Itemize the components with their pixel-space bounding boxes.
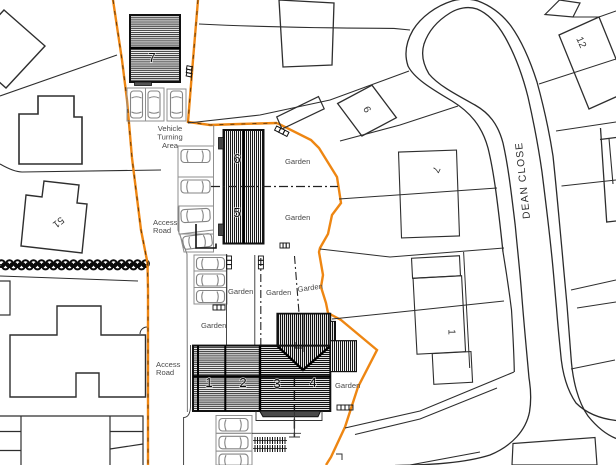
svg-text:7: 7 xyxy=(148,50,155,65)
svg-text:1: 1 xyxy=(446,329,457,335)
svg-text:Garden: Garden xyxy=(228,287,253,296)
svg-text:2: 2 xyxy=(239,375,246,390)
svg-text:Garden: Garden xyxy=(266,288,291,297)
svg-text:Road: Road xyxy=(156,368,174,377)
svg-text:Garden: Garden xyxy=(285,213,310,222)
svg-text:6: 6 xyxy=(233,151,240,166)
svg-text:Road: Road xyxy=(153,226,171,235)
svg-text:Garden: Garden xyxy=(201,321,226,330)
svg-text:3: 3 xyxy=(273,376,280,391)
svg-text:Area: Area xyxy=(162,141,179,150)
svg-text:Garden: Garden xyxy=(285,157,310,166)
svg-text:1: 1 xyxy=(205,375,212,390)
svg-text:Garden: Garden xyxy=(335,381,360,390)
svg-text:4: 4 xyxy=(309,375,316,390)
svg-text:5: 5 xyxy=(233,205,240,220)
